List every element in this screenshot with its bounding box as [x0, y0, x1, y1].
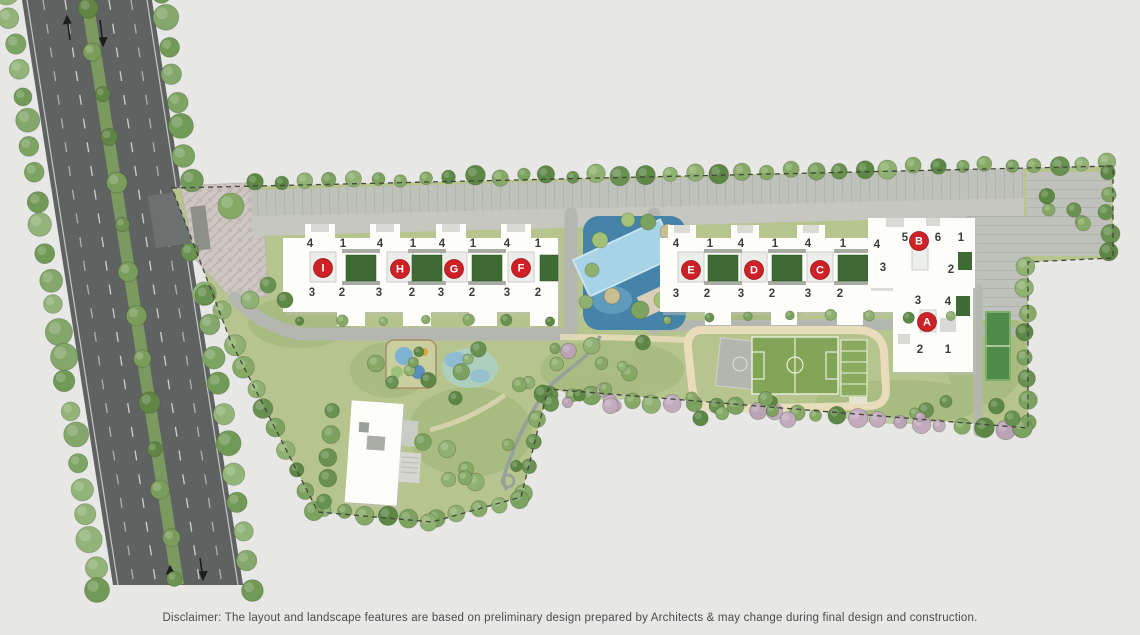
unit-number: 3: [376, 287, 382, 299]
tower-marker-letter: B: [915, 236, 923, 248]
tower-marker-letter: G: [450, 264, 459, 276]
unit-number: 2: [948, 264, 954, 276]
tower-marker-letter: F: [518, 263, 525, 275]
tower-marker-g[interactable]: G: [445, 260, 464, 279]
site-master-plan: 41414141323232324141414323232561323421 I…: [0, 0, 1140, 635]
tower-a-building: [893, 286, 976, 375]
tower-marker-letter: E: [687, 265, 694, 277]
clubhouse-building: [345, 400, 404, 505]
tower-marker-e[interactable]: E: [682, 261, 701, 280]
tower-b-building: [868, 218, 978, 291]
unit-number: 2: [769, 288, 775, 300]
unit-number: 1: [772, 238, 779, 250]
tower-marker-a[interactable]: A: [918, 313, 937, 332]
unit-number: 2: [409, 287, 415, 299]
tower-marker-f[interactable]: F: [512, 259, 531, 278]
unit-number: 1: [470, 238, 477, 250]
unit-number: 3: [309, 287, 315, 299]
clubhouse-roof-deck: [366, 435, 385, 450]
tower-marker-b[interactable]: B: [910, 232, 929, 251]
unit-number: 4: [307, 238, 314, 250]
plan-canvas: 41414141323232324141414323232561323421 I…: [0, 0, 1140, 635]
unit-number: 1: [340, 238, 347, 250]
unit-number: 1: [945, 344, 952, 356]
unit-number: 4: [874, 239, 881, 251]
unit-number: 2: [704, 288, 710, 300]
unit-number: 4: [377, 238, 384, 250]
tower-marker-h[interactable]: H: [391, 260, 410, 279]
unit-number: 3: [438, 287, 444, 299]
unit-number: 4: [805, 238, 812, 250]
court-bench: [849, 397, 867, 404]
unit-number: 3: [673, 288, 679, 300]
disclaimer-text: Disclaimer: The layout and landscape fea…: [163, 612, 978, 624]
tower-marker-letter: I: [321, 263, 324, 275]
unit-number: 4: [738, 238, 745, 250]
unit-number: 3: [915, 295, 921, 307]
unit-number: 2: [339, 287, 345, 299]
unit-number: 3: [880, 262, 886, 274]
unit-number: 1: [707, 238, 714, 250]
unit-number: 5: [902, 232, 909, 244]
tower-marker-letter: C: [816, 265, 824, 277]
tower-marker-i[interactable]: I: [314, 259, 333, 278]
multi-court: [841, 340, 867, 396]
unit-number: 4: [439, 238, 446, 250]
unit-number: 3: [504, 287, 510, 299]
tower-marker-c[interactable]: C: [811, 261, 830, 280]
unit-number: 4: [945, 296, 952, 308]
tower-marker-d[interactable]: D: [745, 261, 764, 280]
unit-number: 2: [469, 287, 475, 299]
unit-number: 6: [935, 232, 941, 244]
unit-number: 1: [958, 232, 965, 244]
unit-number: 1: [840, 238, 847, 250]
unit-number: 1: [410, 238, 417, 250]
tower-marker-letter: A: [923, 317, 931, 329]
unit-number: 1: [535, 238, 542, 250]
tower-marker-letter: D: [750, 265, 758, 277]
unit-number: 3: [738, 288, 744, 300]
unit-number: 4: [673, 238, 680, 250]
unit-number: 2: [917, 344, 923, 356]
tower-marker-letter: H: [396, 264, 404, 276]
unit-number: 3: [805, 288, 811, 300]
unit-number: 4: [504, 238, 511, 250]
unit-number: 2: [535, 287, 541, 299]
unit-number: 2: [837, 288, 843, 300]
